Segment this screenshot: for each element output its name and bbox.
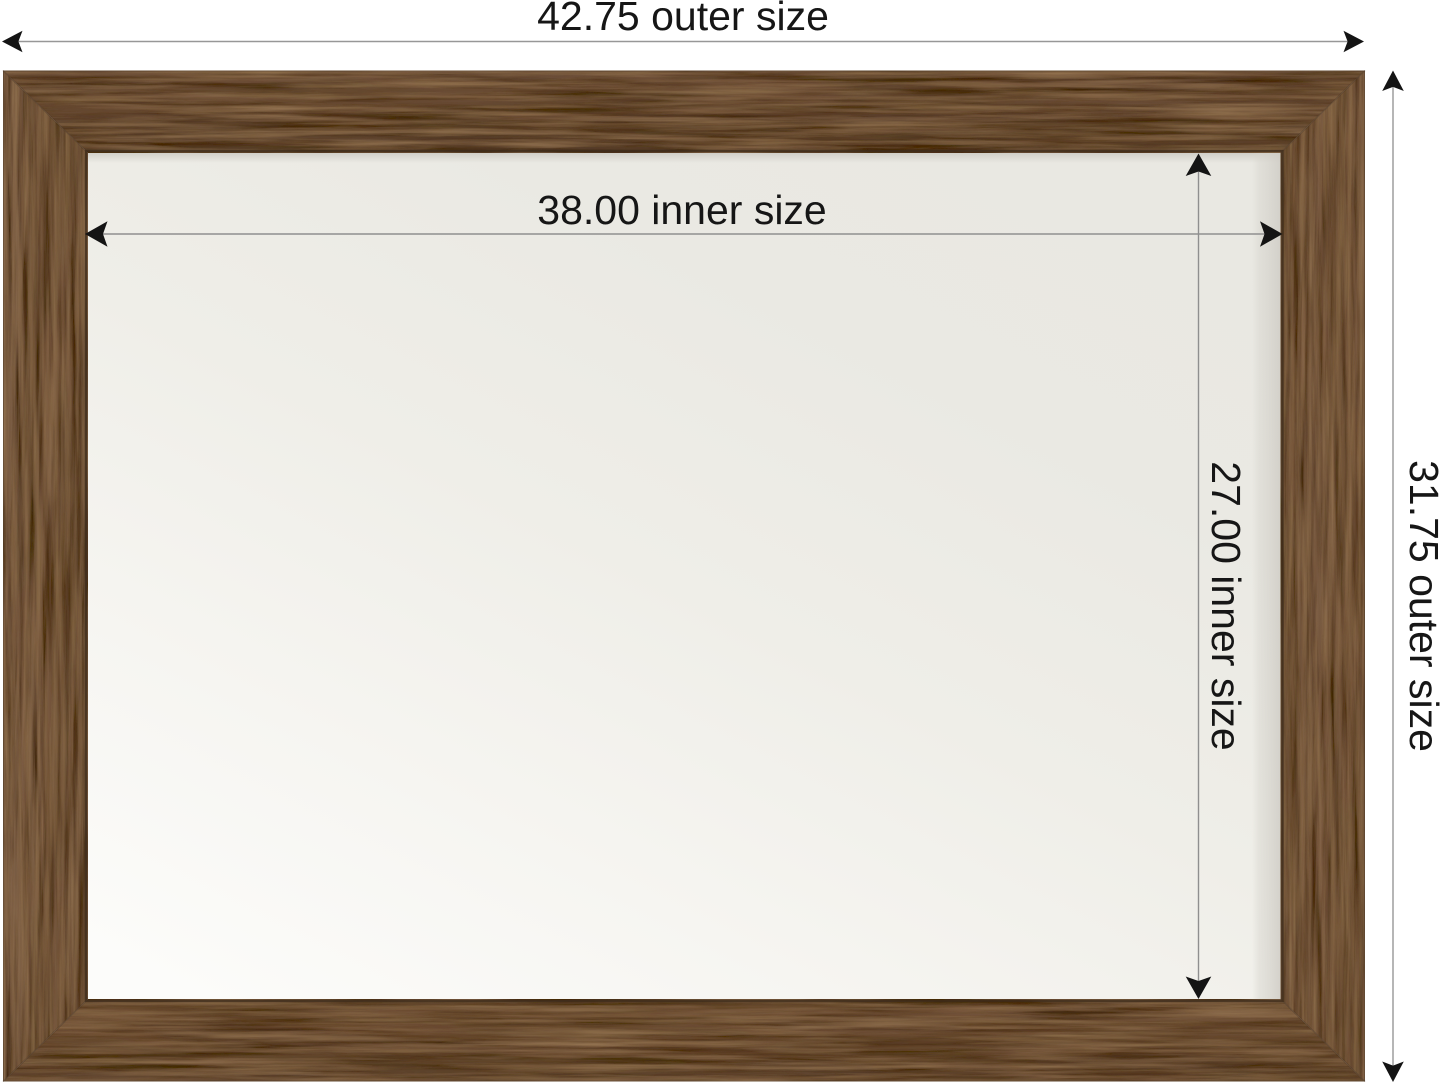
svg-text:31.75 outer size: 31.75 outer size — [1401, 460, 1445, 752]
svg-text:38.00 inner size: 38.00 inner size — [537, 187, 826, 233]
svg-text:27.00 inner size: 27.00 inner size — [1203, 461, 1249, 750]
svg-text:42.75 outer size: 42.75 outer size — [537, 0, 829, 39]
